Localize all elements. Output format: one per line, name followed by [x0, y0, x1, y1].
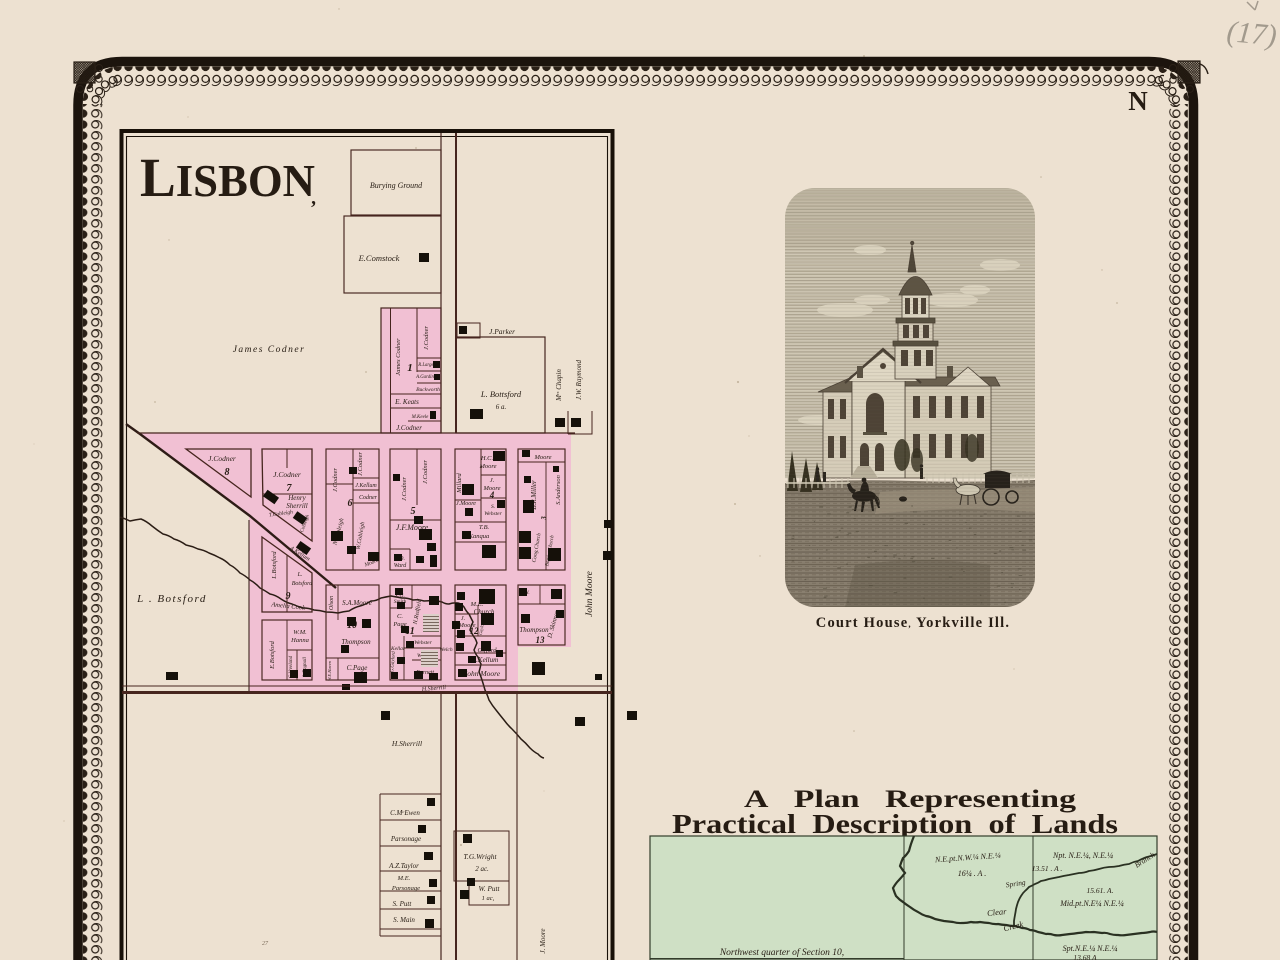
- svg-text:N: N: [1128, 86, 1148, 116]
- svg-text:A.Z.Taylor: A.Z.Taylor: [388, 862, 419, 870]
- svg-text:J.Codner: J.Codner: [401, 477, 408, 501]
- svg-text:Millard: Millard: [456, 472, 463, 493]
- svg-text:J.Parker: J.Parker: [489, 327, 515, 336]
- svg-text:J.Codner: J.Codner: [422, 460, 429, 484]
- svg-text:John Moore: John Moore: [464, 669, 501, 678]
- svg-text:Court House, Yorkville Ill.: Court House, Yorkville Ill.: [816, 615, 1010, 631]
- svg-text:13: 13: [536, 635, 546, 645]
- svg-text:S.A.Moore: S.A.Moore: [342, 599, 372, 607]
- svg-text:1 ac,: 1 ac,: [482, 895, 495, 902]
- svg-text:S.: S.: [491, 504, 495, 510]
- svg-text:T.B.: T.B.: [479, 524, 490, 531]
- svg-text:L.: L.: [297, 572, 303, 578]
- svg-text:J.Codner: J.Codner: [357, 452, 364, 476]
- svg-text:16¼ . A .: 16¼ . A .: [958, 869, 987, 878]
- svg-text:James Codner: James Codner: [233, 345, 306, 355]
- svg-text:J.Codner: J.Codner: [332, 468, 339, 492]
- svg-text:Moore: Moore: [478, 463, 496, 470]
- svg-text:M.E.: M.E.: [397, 875, 411, 882]
- svg-text:J.Codner: J.Codner: [423, 326, 430, 350]
- svg-text:Buckworth: Buckworth: [416, 387, 440, 393]
- svg-text:4: 4: [489, 490, 495, 500]
- svg-text:LISBON,: LISBON,: [140, 147, 316, 209]
- svg-text:Burying Ground: Burying Ground: [370, 181, 423, 190]
- svg-text:Olson: Olson: [329, 596, 335, 610]
- svg-text:Hanna: Hanna: [290, 637, 309, 644]
- svg-text:C.: C.: [397, 613, 403, 620]
- svg-text:Codner: Codner: [359, 495, 378, 501]
- svg-text:J.W. Raymond: J.W. Raymond: [575, 360, 583, 400]
- svg-text:L . Botsford: L . Botsford: [136, 593, 207, 605]
- svg-text:Welch: Welch: [439, 647, 452, 653]
- svg-text:L.Botsford: L.Botsford: [271, 551, 278, 580]
- svg-text:C.McEwen: C.McEwen: [390, 809, 420, 817]
- svg-text:2 ac.: 2 ac.: [475, 865, 489, 873]
- svg-text:Webster: Webster: [414, 640, 432, 646]
- svg-text:J.Moore: J.Moore: [456, 501, 476, 507]
- svg-text:John Moore: John Moore: [585, 571, 595, 617]
- svg-text:H.C.: H.C.: [480, 455, 494, 462]
- svg-text:J.Codner: J.Codner: [208, 454, 236, 463]
- svg-text:J. Moore: J. Moore: [539, 928, 547, 953]
- svg-text:Moore: Moore: [533, 454, 551, 461]
- svg-text:S. Main: S. Main: [393, 916, 415, 924]
- svg-text:13.68 A: 13.68 A: [1073, 953, 1097, 960]
- svg-text:Mrs Chapin: Mrs Chapin: [555, 369, 563, 402]
- svg-text:W. Putt: W. Putt: [479, 885, 501, 893]
- svg-text:Botsford: Botsford: [292, 580, 313, 587]
- svg-text:6: 6: [348, 498, 353, 509]
- svg-text:S. Putt: S. Putt: [393, 900, 413, 908]
- svg-text:6 a.: 6 a.: [496, 403, 507, 411]
- svg-text:Parsonage: Parsonage: [390, 835, 421, 843]
- svg-text:Parsonage: Parsonage: [391, 885, 420, 892]
- svg-text:J.Codner: J.Codner: [273, 470, 301, 479]
- svg-text:Clear: Clear: [987, 906, 1008, 918]
- svg-text:Northwest quarter of Section 1: Northwest quarter of Section 10,: [719, 947, 844, 958]
- svg-text:J.Codner: J.Codner: [396, 424, 422, 432]
- svg-text:8: 8: [225, 467, 230, 478]
- svg-text:E. Keats: E. Keats: [394, 398, 419, 406]
- svg-text:(17): (17): [1225, 15, 1278, 52]
- svg-text:M.Keele: M.Keele: [411, 415, 430, 420]
- svg-text:Npt. N.E.¼, N.E.¼: Npt. N.E.¼, N.E.¼: [1052, 851, 1113, 860]
- svg-text:Mid.pt.N.E¼ N.E.¼: Mid.pt.N.E¼ N.E.¼: [1059, 899, 1124, 908]
- svg-text:L. Bottsford: L. Bottsford: [480, 389, 522, 399]
- svg-text:J.Kellum: J.Kellum: [355, 483, 377, 489]
- svg-text:James Codner: James Codner: [395, 338, 402, 376]
- svg-text:Ward: Ward: [394, 563, 408, 569]
- svg-text:Practical Description of La: Practical Description of Lands: [672, 809, 1118, 839]
- svg-text:H.Sherrill: H.Sherrill: [391, 739, 422, 748]
- svg-text:27: 27: [262, 941, 269, 947]
- svg-text:M.E.: M.E.: [470, 601, 484, 608]
- svg-text:5: 5: [411, 506, 416, 517]
- svg-text:Henry: Henry: [287, 494, 306, 502]
- svg-text:E.Comstock: E.Comstock: [358, 253, 400, 263]
- svg-text:J.: J.: [490, 477, 495, 484]
- svg-text:Thompson: Thompson: [341, 638, 371, 646]
- svg-text:Webster: Webster: [484, 511, 502, 517]
- svg-text:Kellar: Kellar: [390, 646, 406, 652]
- svg-text:3: 3: [540, 516, 548, 521]
- svg-text:E.Botsford: E.Botsford: [269, 640, 276, 669]
- svg-text:13.51 . A .: 13.51 . A .: [1032, 864, 1063, 873]
- svg-text:W.E.Haven: W.E.Haven: [327, 660, 332, 681]
- svg-text:C.Page: C.Page: [347, 664, 368, 672]
- svg-text:Thompson: Thompson: [519, 626, 549, 634]
- svg-text:15.61. A.: 15.61. A.: [1087, 886, 1114, 895]
- svg-text:Spt.N.E.¼ N.E.¼: Spt.N.E.¼ N.E.¼: [1063, 944, 1118, 953]
- svg-text:S.Anderson: S.Anderson: [555, 475, 562, 505]
- svg-text:T.G.Wright: T.G.Wright: [463, 852, 497, 861]
- svg-text:9: 9: [286, 591, 291, 602]
- svg-text:1: 1: [407, 362, 413, 374]
- svg-text:W.M.: W.M.: [293, 629, 307, 636]
